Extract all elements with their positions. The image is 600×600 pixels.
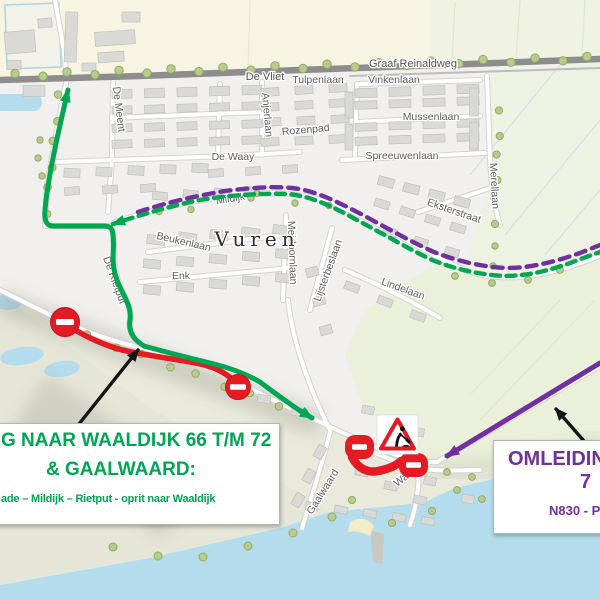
building bbox=[64, 186, 80, 195]
building bbox=[242, 120, 262, 129]
tree-icon bbox=[219, 63, 227, 71]
detour-title-number: 7 bbox=[580, 471, 600, 494]
tree-icon bbox=[328, 513, 336, 521]
street-label-rozenpad: Rozenpad bbox=[281, 122, 330, 138]
tree-icon bbox=[493, 151, 500, 158]
building bbox=[295, 86, 313, 95]
street-label-spreeuwenlaan: Spreeuwenlaan bbox=[366, 150, 439, 162]
tree-icon bbox=[39, 173, 45, 179]
building bbox=[423, 134, 445, 143]
detour-info-box-n830: OMLEIDIN 7 N830 - P bbox=[493, 440, 600, 534]
building bbox=[319, 324, 333, 336]
detour-title-line1: G NAAR WAALDIJK 66 T/M 72 bbox=[1, 430, 279, 452]
tree-icon bbox=[559, 57, 567, 65]
building bbox=[389, 87, 411, 97]
building bbox=[242, 276, 260, 286]
tree-icon bbox=[428, 507, 435, 514]
tree-icon bbox=[167, 363, 175, 371]
building bbox=[192, 163, 208, 173]
building bbox=[209, 137, 229, 146]
building bbox=[355, 137, 377, 146]
building bbox=[177, 138, 197, 147]
building bbox=[389, 135, 411, 144]
building bbox=[98, 51, 125, 63]
building bbox=[128, 166, 144, 176]
street-label-enk: Enk bbox=[172, 270, 191, 282]
building bbox=[144, 105, 164, 114]
building bbox=[64, 168, 80, 178]
tree-icon bbox=[54, 91, 62, 99]
roadworks-icon bbox=[377, 415, 418, 454]
no-entry-icon bbox=[399, 453, 428, 477]
tree-icon bbox=[525, 277, 532, 284]
building bbox=[377, 176, 395, 189]
building bbox=[470, 122, 479, 150]
tree-icon bbox=[154, 552, 162, 560]
tree-icon bbox=[491, 220, 498, 227]
detour-route-n830: N830 - P bbox=[549, 503, 600, 518]
building bbox=[423, 85, 445, 95]
building bbox=[295, 101, 313, 110]
building bbox=[329, 135, 347, 144]
building bbox=[143, 285, 161, 295]
tree-icon bbox=[495, 107, 502, 114]
tree-icon bbox=[192, 370, 200, 378]
street-label-merellaan: Merellaan bbox=[487, 163, 501, 210]
building bbox=[152, 191, 168, 201]
building bbox=[329, 99, 347, 108]
tree-icon bbox=[39, 72, 47, 80]
building bbox=[399, 206, 416, 218]
tree-icon bbox=[299, 64, 307, 72]
tree-icon bbox=[167, 65, 175, 73]
street-label-de-waay: De Waay bbox=[212, 151, 256, 163]
building bbox=[295, 136, 313, 145]
tree-icon bbox=[292, 200, 298, 206]
detour-info-box-waaldijk: G NAAR WAALDIJK 66 T/M 72 & GAALWAARD: a… bbox=[0, 423, 280, 525]
building bbox=[345, 124, 353, 150]
building bbox=[209, 279, 227, 289]
building bbox=[242, 102, 262, 111]
building bbox=[389, 99, 411, 108]
tree-icon bbox=[195, 67, 203, 75]
building bbox=[177, 122, 197, 131]
building bbox=[82, 63, 96, 71]
building bbox=[245, 166, 261, 175]
building bbox=[144, 88, 164, 98]
building bbox=[423, 476, 436, 486]
no-entry-icon bbox=[345, 435, 374, 459]
no-entry-icon bbox=[226, 375, 251, 400]
building bbox=[344, 281, 361, 294]
building bbox=[209, 86, 229, 96]
building bbox=[345, 92, 353, 118]
street-label-de-vliet: De Vliet bbox=[246, 71, 285, 83]
building bbox=[102, 185, 118, 194]
building bbox=[374, 198, 391, 210]
tree-icon bbox=[323, 60, 331, 68]
building bbox=[209, 103, 229, 112]
building bbox=[450, 222, 467, 234]
building bbox=[461, 494, 474, 504]
tree-icon bbox=[35, 155, 41, 161]
building bbox=[355, 88, 377, 98]
building bbox=[423, 98, 445, 107]
tree-icon bbox=[143, 69, 151, 77]
detour-title-line2: & GAALWAARD: bbox=[46, 459, 279, 481]
detour-map: De Vliet Tulpenlaan Vinkenlaan Graaf Rei… bbox=[0, 0, 600, 600]
building bbox=[424, 214, 441, 226]
tree-icon bbox=[199, 553, 207, 561]
tree-icon bbox=[271, 62, 279, 70]
tree-icon bbox=[469, 474, 476, 481]
tree-icon bbox=[348, 496, 355, 503]
tree-icon bbox=[489, 280, 496, 287]
building bbox=[38, 18, 53, 28]
building bbox=[64, 12, 78, 62]
building bbox=[122, 12, 140, 22]
tree-icon bbox=[11, 69, 19, 77]
building bbox=[177, 104, 197, 113]
tree-icon bbox=[388, 519, 395, 526]
building bbox=[95, 30, 136, 47]
building bbox=[177, 87, 197, 97]
building bbox=[143, 259, 161, 269]
building bbox=[242, 136, 262, 145]
tree-icon bbox=[496, 132, 503, 139]
no-entry-icon bbox=[51, 308, 80, 337]
building bbox=[176, 282, 194, 292]
building bbox=[242, 251, 260, 261]
tree-icon bbox=[63, 68, 71, 76]
building bbox=[96, 167, 112, 177]
building bbox=[209, 121, 229, 130]
tree-icon bbox=[507, 58, 515, 66]
tree-icon bbox=[492, 243, 498, 249]
building bbox=[208, 168, 224, 177]
street-label-graaf-reinaldweg: Graaf Reinaldweg bbox=[369, 58, 457, 70]
tree-icon bbox=[452, 273, 459, 280]
tree-icon bbox=[109, 543, 117, 551]
building bbox=[355, 101, 377, 110]
building bbox=[160, 164, 176, 174]
detour-title-omleiding: OMLEIDIN bbox=[508, 448, 600, 471]
tree-icon bbox=[188, 206, 194, 212]
building bbox=[144, 139, 164, 148]
building bbox=[402, 182, 420, 195]
tree-icon bbox=[479, 496, 486, 503]
tree-icon bbox=[244, 542, 252, 550]
tree-icon bbox=[351, 63, 359, 71]
street-label-vinkenlaan: Vinkenlaan bbox=[368, 74, 420, 86]
building bbox=[261, 138, 279, 147]
town-label-vuren: Vuren bbox=[213, 227, 299, 251]
building bbox=[144, 123, 164, 132]
building bbox=[4, 30, 36, 55]
tree-icon bbox=[275, 402, 283, 410]
building bbox=[112, 140, 132, 149]
building bbox=[209, 254, 227, 264]
tree-icon bbox=[444, 469, 451, 476]
tree-icon bbox=[91, 70, 99, 78]
building bbox=[23, 86, 45, 97]
tree-icon bbox=[115, 66, 123, 74]
building bbox=[282, 164, 298, 173]
tree-icon bbox=[37, 137, 43, 143]
building bbox=[176, 256, 194, 266]
building bbox=[355, 123, 377, 132]
tree-icon bbox=[583, 52, 591, 60]
street-label-tulpenlaan: Tulpenlaan bbox=[292, 74, 344, 86]
building bbox=[470, 88, 479, 116]
tree-icon bbox=[479, 55, 487, 63]
tree-icon bbox=[289, 529, 297, 537]
tree-icon bbox=[531, 54, 539, 62]
street-label-mussenlaan: Mussenlaan bbox=[403, 111, 460, 123]
building bbox=[361, 405, 374, 415]
tree-icon bbox=[454, 487, 461, 494]
building bbox=[7, 61, 21, 70]
detour-route-description: ade – Mildijk – Rietput - oprit naar Waa… bbox=[1, 493, 279, 505]
